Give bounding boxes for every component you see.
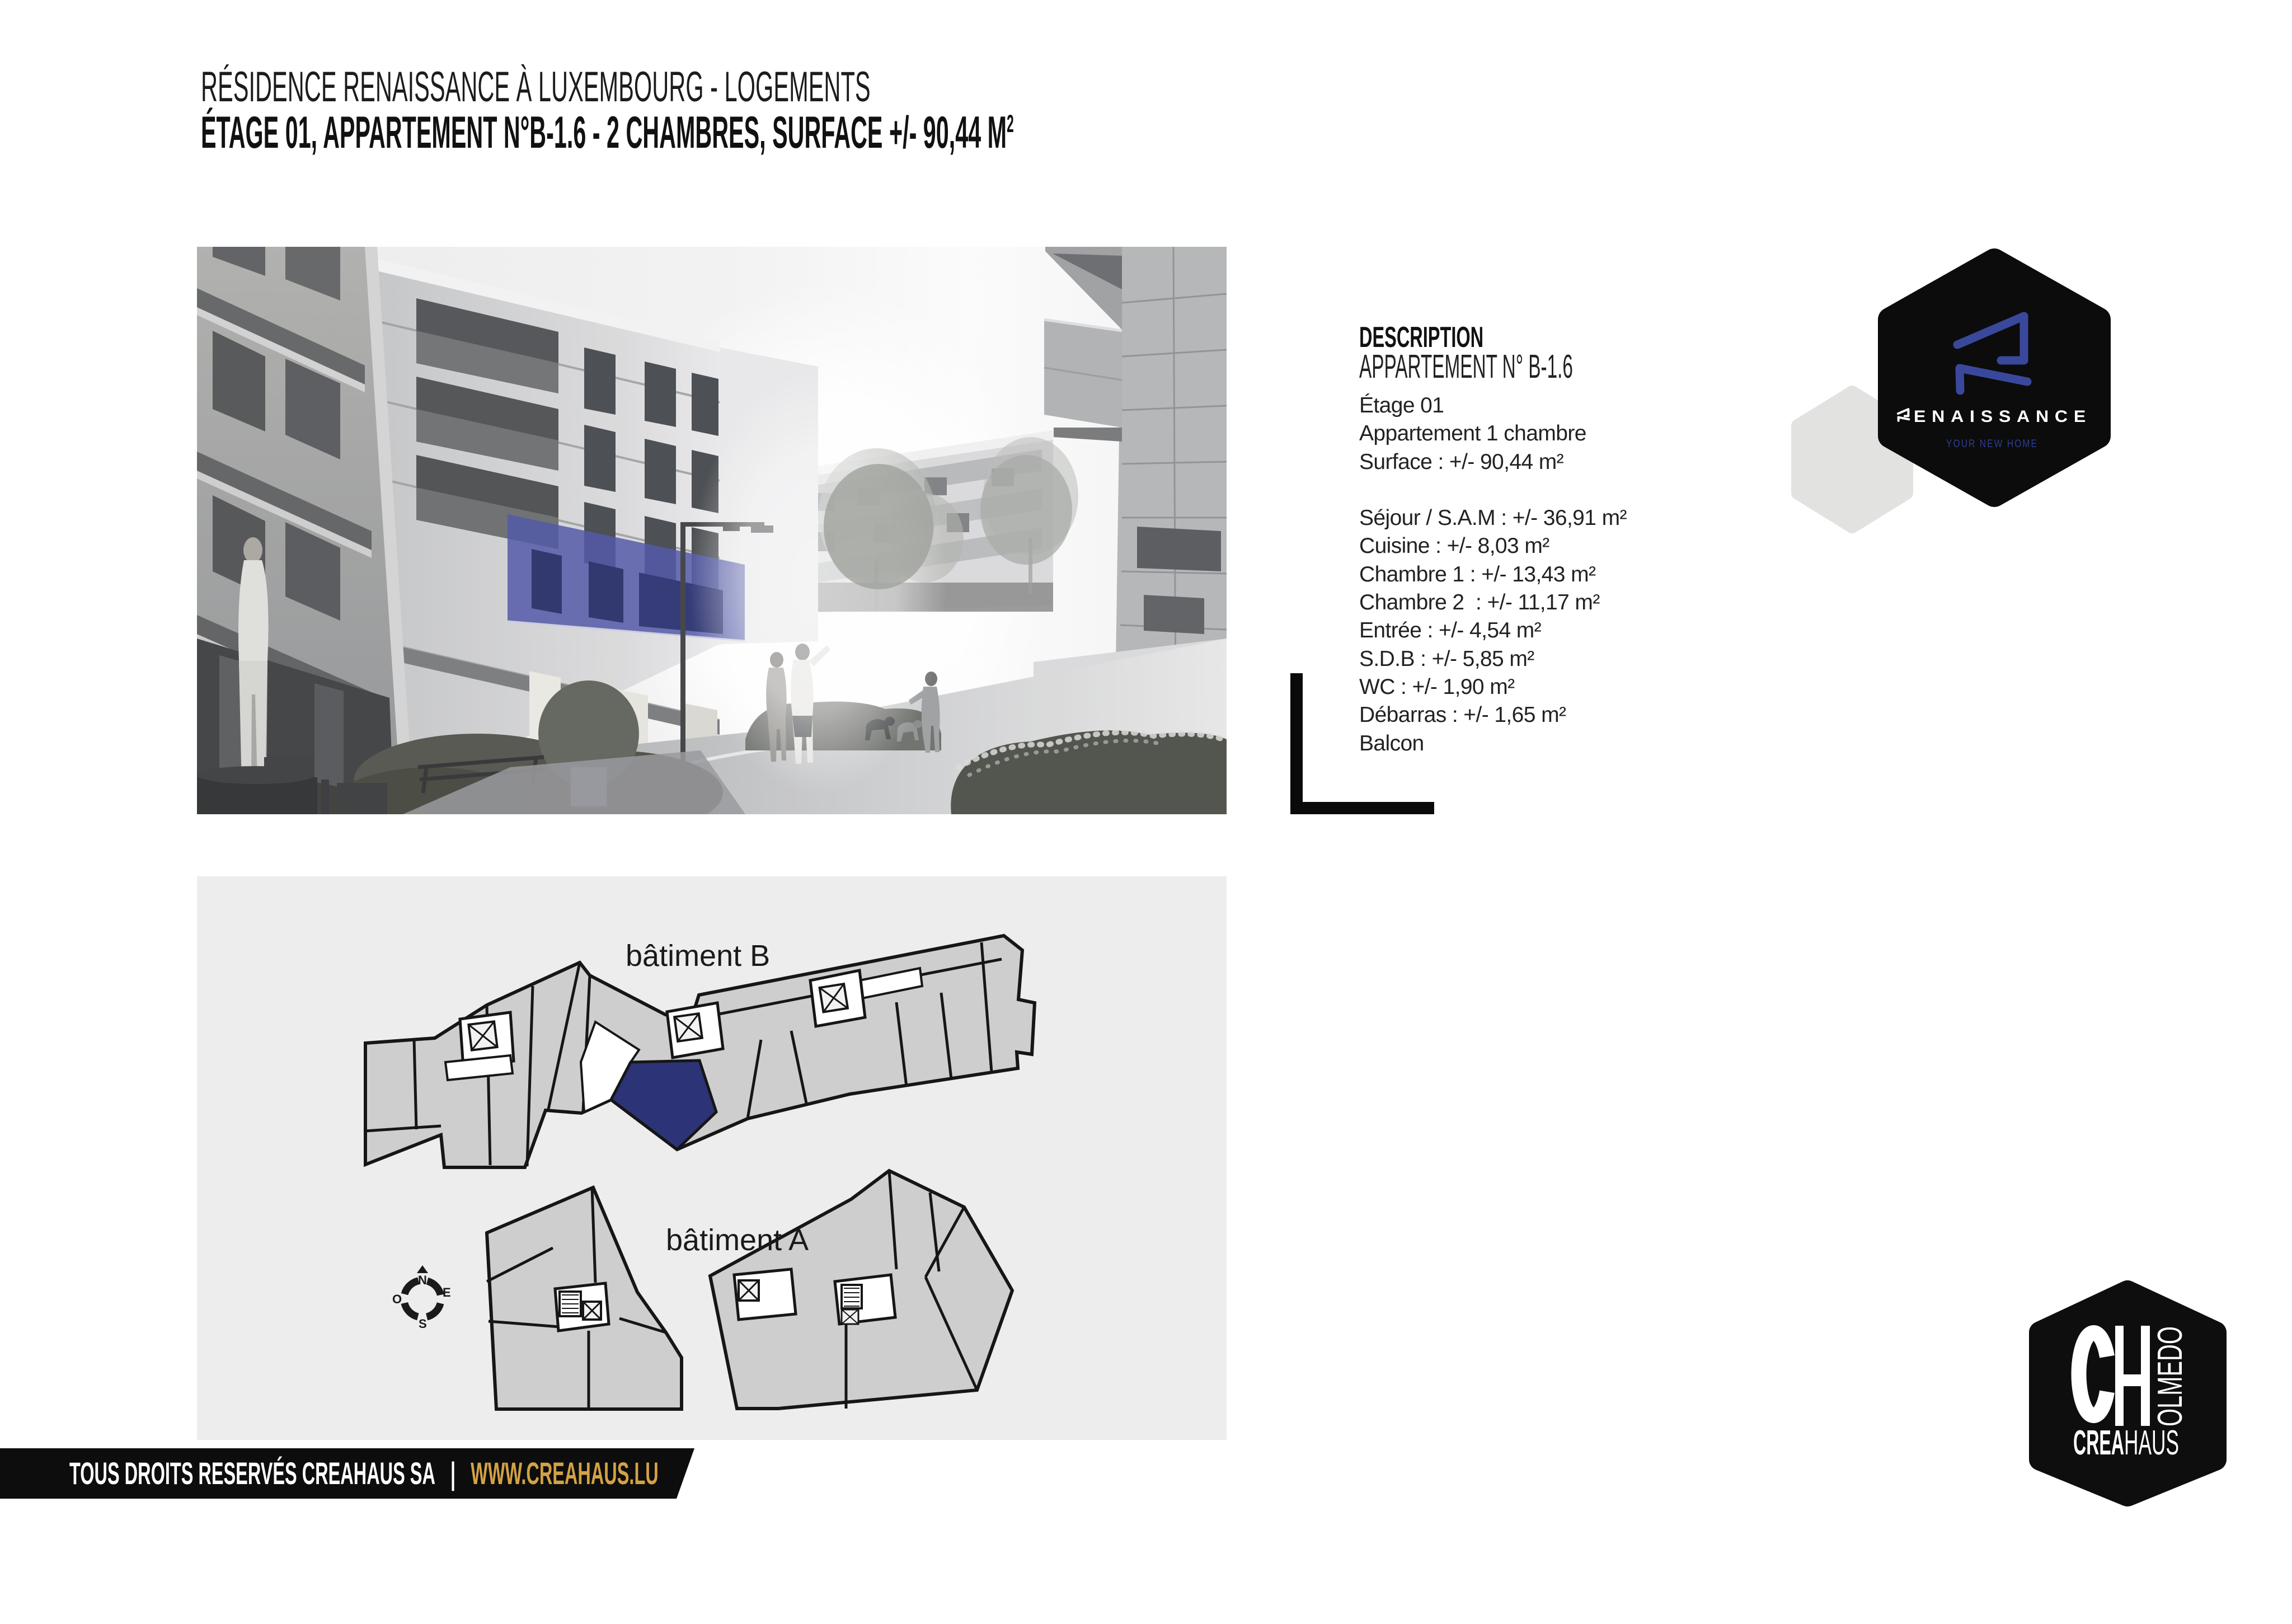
svg-text:bâtiment A: bâtiment A xyxy=(666,1223,809,1257)
svg-text:E: E xyxy=(443,1285,451,1299)
svg-text:CREA: CREA xyxy=(2073,1424,2124,1462)
svg-text:N: N xyxy=(418,1273,427,1287)
svg-text:O: O xyxy=(392,1292,402,1306)
svg-text:HAUS: HAUS xyxy=(2124,1424,2179,1462)
svg-text:S: S xyxy=(419,1317,427,1331)
svg-text:ENAISSANCE: ENAISSANCE xyxy=(1914,407,2092,426)
svg-text:bâtiment B: bâtiment B xyxy=(626,939,770,973)
svg-text:OLMEDO: OLMEDO xyxy=(2151,1326,2190,1426)
svg-text:YOUR NEW HOME: YOUR NEW HOME xyxy=(1946,438,2038,450)
